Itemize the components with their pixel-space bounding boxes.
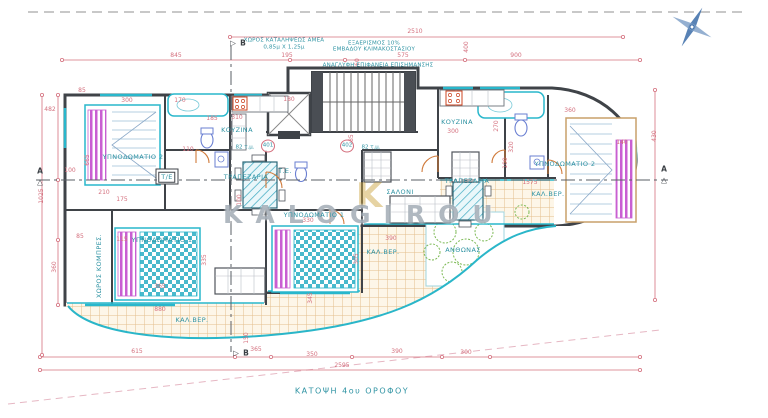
sink-left xyxy=(215,152,228,167)
kitchen-counter-right xyxy=(440,90,504,106)
toilet-left xyxy=(201,128,213,148)
plan-title: ΚΑΤΟΨΗ 4ου ΟΡΟΦΟΥ xyxy=(295,387,409,396)
north-arrow-icon xyxy=(662,0,722,57)
toilet-right xyxy=(515,114,527,136)
watermark-text: KALOGIROU xyxy=(223,200,506,229)
bed-bedroom1-left xyxy=(115,228,200,300)
floor-plan-page: K KALOGIROU ΚΑΤΟΨΗ 4ου ΟΡΟΦΟΥ 2510845195… xyxy=(0,0,768,418)
bed-bedroom2-left xyxy=(85,105,160,185)
staircase xyxy=(312,72,415,132)
sink-right xyxy=(530,156,544,169)
sofa-left xyxy=(215,268,265,294)
laundry-box xyxy=(156,169,178,184)
bathtub-left xyxy=(168,94,228,116)
toilet-mid xyxy=(295,162,307,182)
bed-bedroom2-right xyxy=(566,118,636,222)
bed-bedroom1-mid xyxy=(272,226,358,292)
